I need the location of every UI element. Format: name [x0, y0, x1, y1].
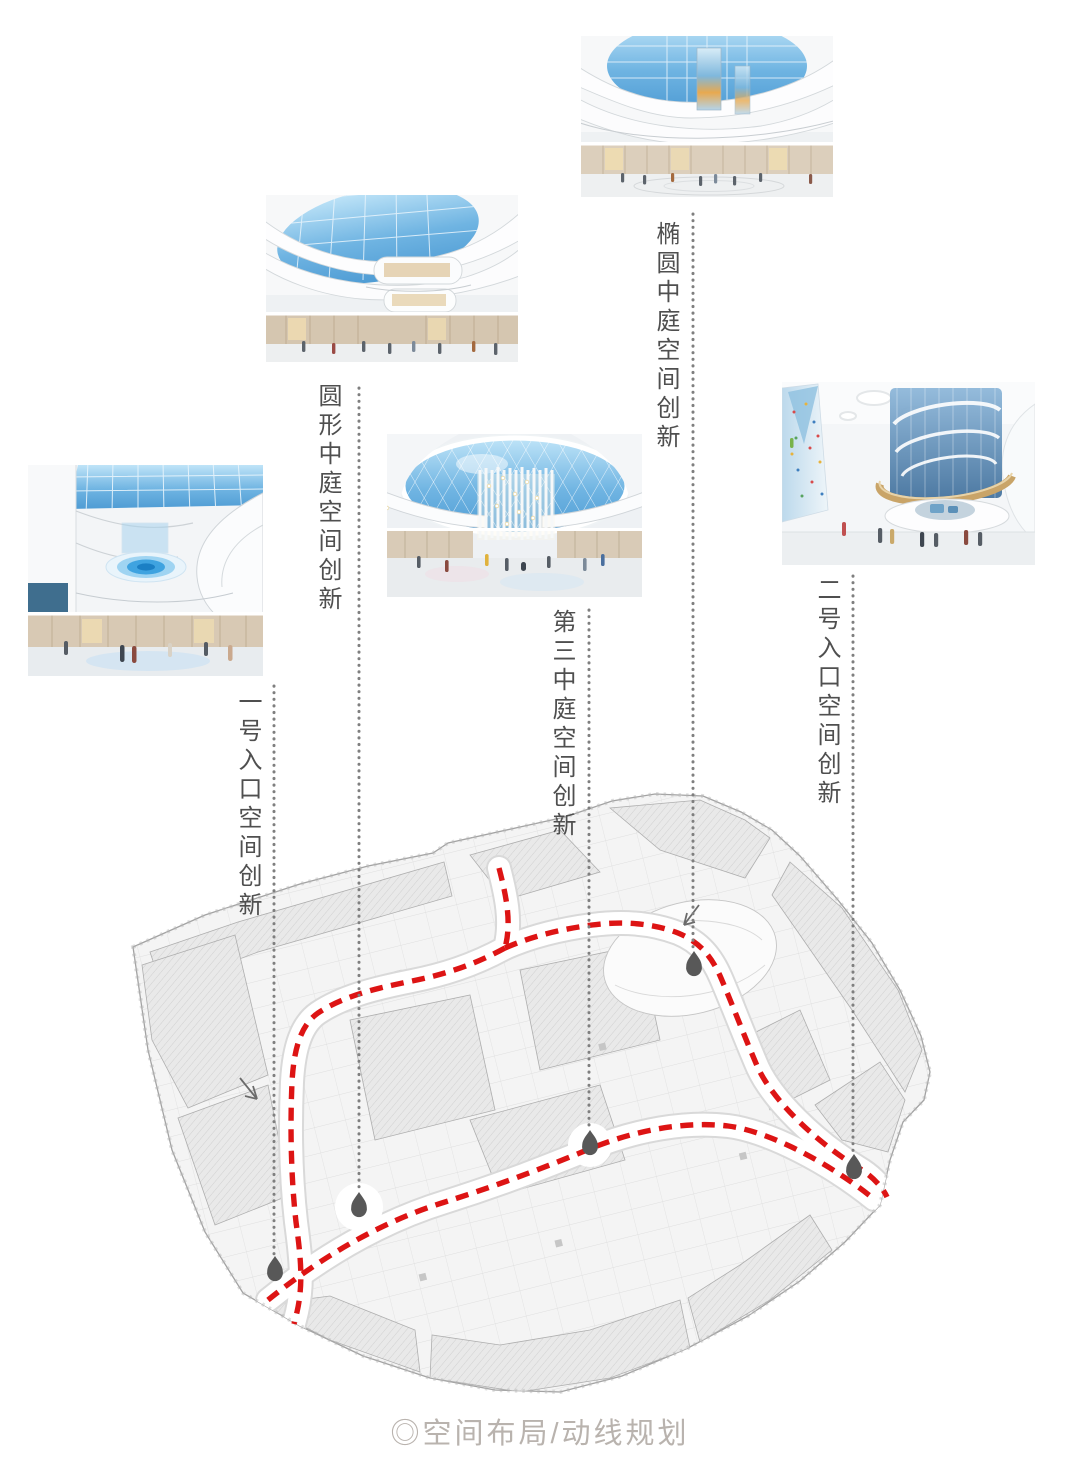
label-oval-atrium: 椭圆中庭空间创新 — [652, 221, 679, 453]
entrance-1-rendering — [28, 465, 263, 676]
entrance-2-rendering — [782, 382, 1035, 565]
photo-round-atrium — [266, 195, 518, 362]
label-entrance-1: 一号入口空间创新 — [234, 689, 261, 921]
third-atrium-rendering — [387, 434, 642, 597]
photo-oval-atrium — [581, 36, 833, 197]
presentation-page: 椭圆中庭空间创新 圆形中庭空间创新 一号入口空间创新 第三中庭空间创新 二号入口… — [0, 0, 1080, 1475]
label-round-atrium: 圆形中庭空间创新 — [314, 383, 341, 615]
floor-plan-canvas — [0, 0, 1080, 1475]
oval-atrium-rendering — [581, 36, 833, 197]
photo-entrance-1 — [28, 465, 263, 676]
label-entrance-2: 二号入口空间创新 — [813, 577, 840, 809]
photo-third-atrium — [387, 434, 642, 597]
photo-entrance-2 — [782, 382, 1035, 565]
page-caption: ◎空间布局/动线规划 — [0, 1410, 1080, 1452]
round-atrium-rendering — [266, 195, 518, 362]
label-third-atrium: 第三中庭空间创新 — [548, 609, 575, 841]
